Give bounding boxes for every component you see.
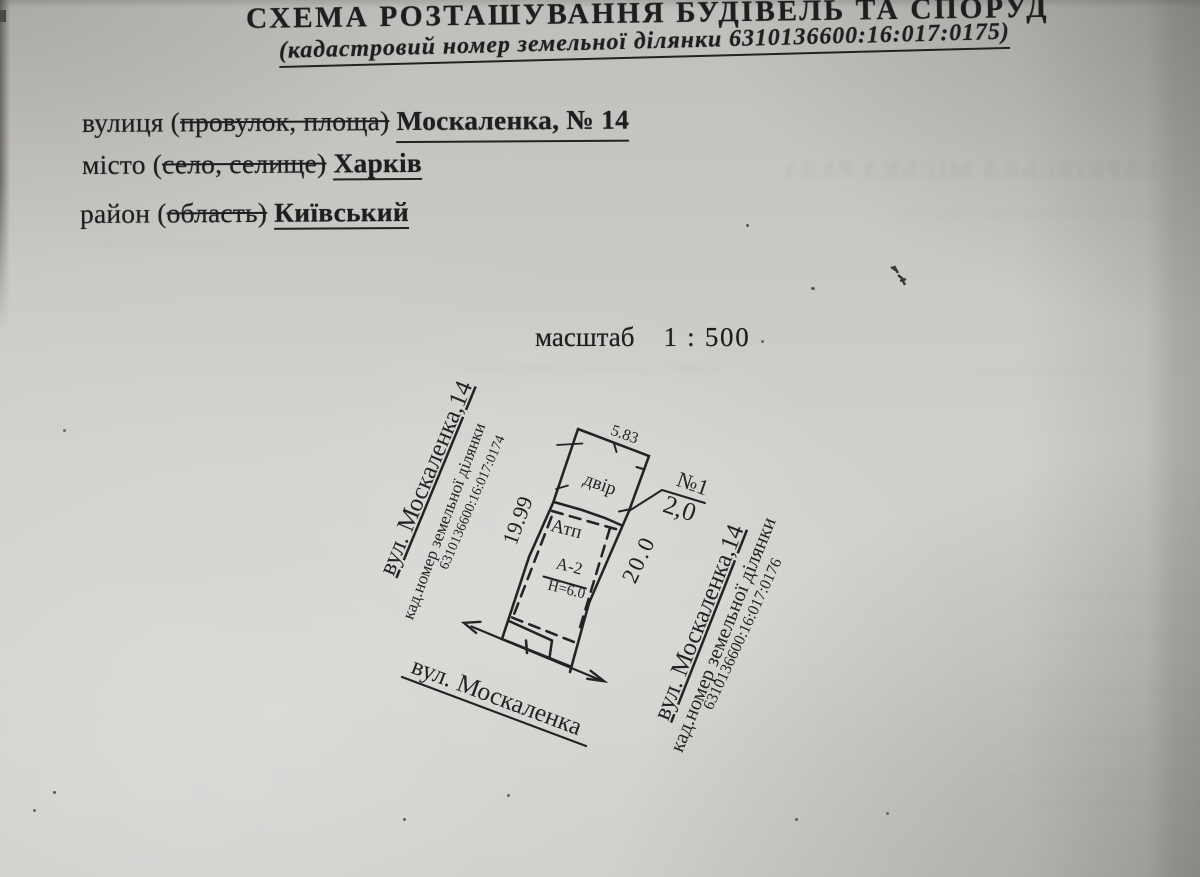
svg-text:А-2: А-2 — [554, 554, 584, 579]
svg-text:двір: двір — [581, 469, 620, 500]
svg-text:19.99: 19.99 — [497, 493, 537, 548]
svg-text:вул. Москаленка: вул. Москаленка — [408, 651, 586, 741]
svg-text:20.0: 20.0 — [617, 532, 660, 587]
svg-text:Н=6.0: Н=6.0 — [546, 578, 587, 603]
